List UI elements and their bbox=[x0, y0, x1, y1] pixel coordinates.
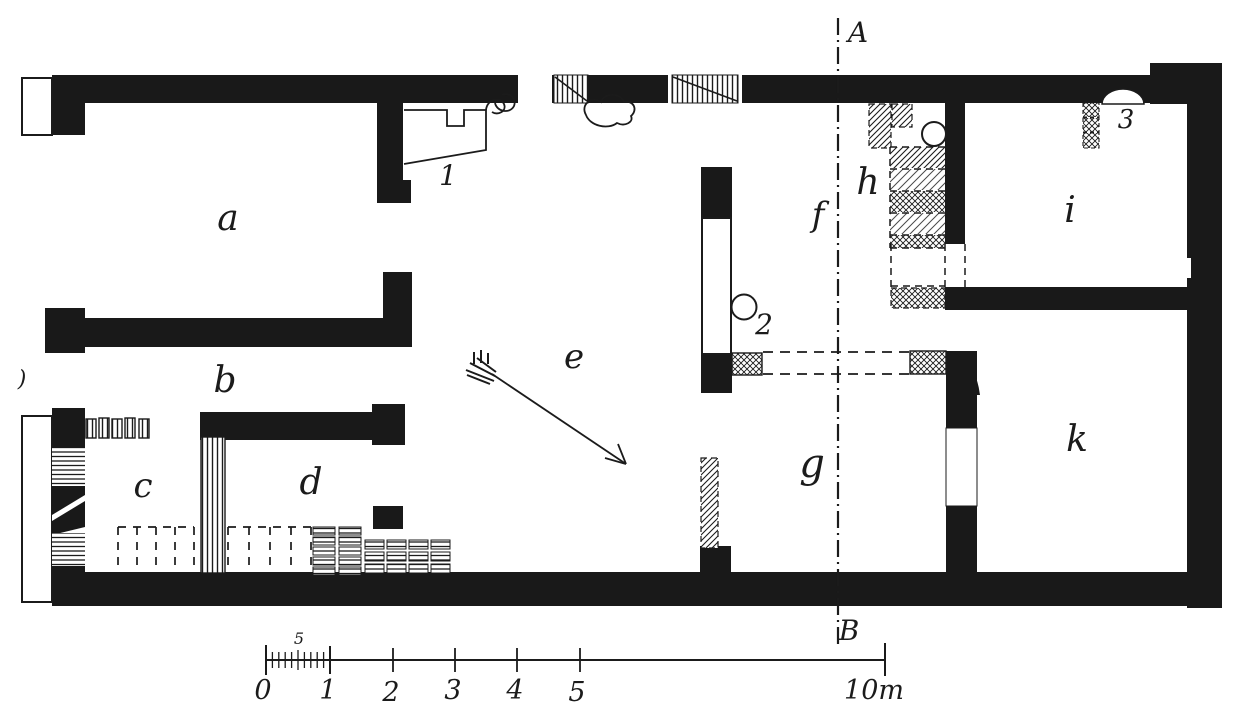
hatched-wall-strips bbox=[201, 437, 718, 573]
room-label-b: b bbox=[213, 360, 236, 401]
room-label-i: i bbox=[1064, 190, 1076, 231]
scale-subdivision-label: 5 bbox=[294, 629, 304, 648]
room-label-e: e bbox=[564, 337, 584, 377]
feature-number-2: 2 bbox=[754, 308, 773, 341]
fixture-1-outline bbox=[404, 94, 515, 164]
feature-number-3: 3 bbox=[1118, 105, 1135, 135]
scale-tick-0: 0 bbox=[254, 675, 271, 706]
scale-tick-4: 4 bbox=[505, 675, 523, 706]
scale-end-label: 10m bbox=[844, 675, 904, 706]
gk-door-opening bbox=[946, 428, 977, 506]
feature-2-circle bbox=[732, 295, 757, 320]
section-label-b: B bbox=[838, 614, 860, 647]
scale-tick-5: 5 bbox=[568, 677, 585, 708]
left-wall-stair-symbol bbox=[52, 448, 85, 566]
floor-plan-figure: a b c d e f g h i k 1 2 3 A B ) 0 1 2 3 … bbox=[0, 0, 1240, 717]
right-wall-joint-notch bbox=[1184, 258, 1191, 278]
section-label-a: A bbox=[845, 16, 868, 49]
room-label-f: f bbox=[809, 195, 830, 235]
room-label-g: g bbox=[799, 441, 825, 487]
stair-post-circle bbox=[922, 122, 946, 146]
room-label-c: c bbox=[133, 466, 152, 506]
find-arrow bbox=[466, 350, 626, 464]
room-label-k: k bbox=[1066, 419, 1088, 460]
floor-plan-drawing: a b c d e f g h i k 1 2 3 A B ) 0 1 2 3 … bbox=[0, 0, 1240, 717]
scale-tick-2: 2 bbox=[381, 677, 399, 708]
stray-mark: ) bbox=[17, 367, 27, 392]
scale-bar bbox=[266, 643, 885, 676]
brick-piles bbox=[313, 527, 450, 575]
room-label-d: d bbox=[299, 462, 322, 503]
scale-tick-1: 1 bbox=[319, 675, 336, 706]
feature-number-1: 1 bbox=[439, 159, 457, 192]
room-label-h: h bbox=[856, 162, 879, 203]
rubble-wall-b-c bbox=[86, 418, 149, 438]
room-label-a: a bbox=[217, 198, 238, 239]
pier-shaft bbox=[702, 218, 731, 354]
scale-tick-3: 3 bbox=[444, 675, 461, 706]
